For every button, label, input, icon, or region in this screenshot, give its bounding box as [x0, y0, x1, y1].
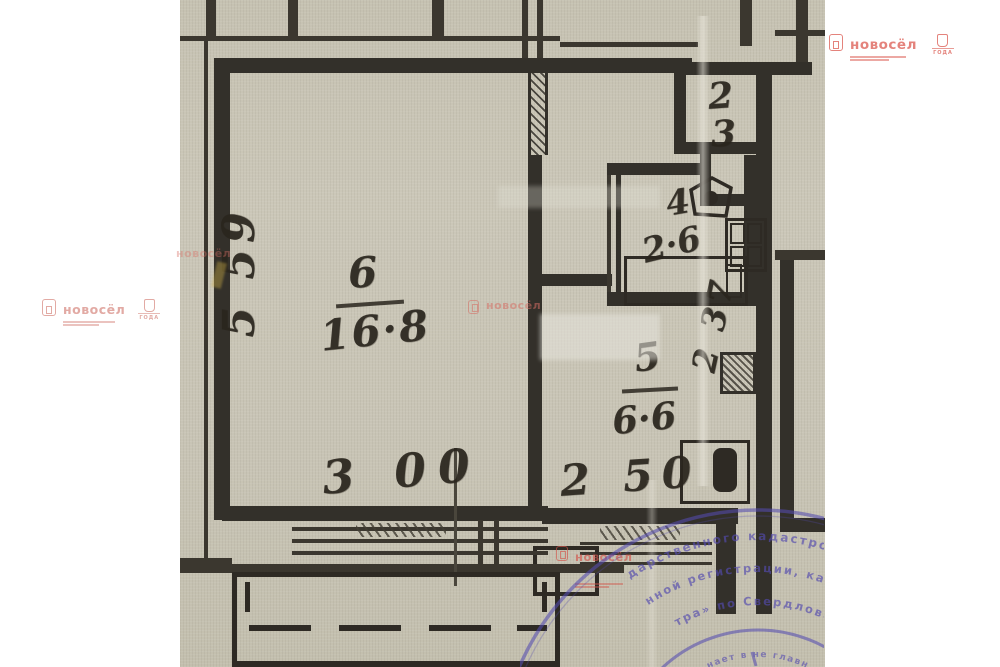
wall	[560, 42, 698, 47]
sink-icon	[688, 176, 734, 220]
wall-bath-left-outer	[607, 163, 611, 303]
window-hatch	[356, 523, 446, 537]
house-icon	[829, 34, 843, 51]
watermark-novosel-top-right: новосёл ГОДА	[829, 34, 954, 63]
watermark-tagline	[850, 56, 906, 63]
scan-light-band	[498, 186, 660, 208]
window-line	[292, 551, 548, 555]
dimension-bottom-main: 3 00	[320, 441, 483, 501]
window-divider	[478, 520, 483, 564]
award-rule	[138, 313, 160, 314]
room-number-main: 6	[347, 251, 378, 294]
window-line	[292, 539, 548, 543]
balcony	[232, 572, 560, 667]
scanned-floorplan-page: 6 16·8 5 6·6 2 3 4 2·6 5 59 3 00 2 50 2 …	[0, 0, 1000, 667]
wall-divider	[528, 155, 542, 508]
wall-left-outer	[204, 40, 208, 572]
room-area-kitchen: 6·6	[610, 397, 678, 441]
balcony-dash	[339, 625, 401, 631]
house-icon	[42, 299, 56, 316]
wall	[740, 0, 752, 46]
stove-icon	[725, 218, 767, 272]
watermark-tagline	[63, 321, 115, 328]
room-number-wc: 3	[710, 116, 736, 153]
watermark-novosel-left: новосёл ГОДА	[42, 299, 160, 328]
wall-top	[222, 58, 692, 73]
room-number-closet: 2	[707, 77, 735, 115]
watermark-award-label: ГОДА	[139, 315, 159, 321]
watermark-award: ГОДА	[138, 299, 160, 321]
wall	[522, 0, 528, 64]
wall-top-right	[676, 62, 812, 75]
window-divider	[494, 520, 499, 564]
wall-main-bottom	[222, 506, 548, 521]
balcony-tick	[245, 582, 250, 612]
medal-icon	[144, 299, 155, 312]
wall-divider-upper	[528, 73, 548, 155]
medal-icon	[937, 34, 948, 47]
balcony-dash	[429, 625, 491, 631]
wall-hall-kitchen	[542, 274, 612, 286]
stamp-ring3-text: тра» по Свердловск	[672, 594, 824, 629]
wall	[775, 250, 825, 260]
wall	[180, 36, 560, 41]
wall-bath-top	[607, 163, 705, 175]
room-area-main: 16·8	[318, 304, 432, 357]
wall	[432, 0, 444, 40]
wall	[206, 0, 216, 40]
wall-closet-left	[674, 70, 686, 152]
wall	[537, 0, 543, 64]
watermark-brand-text: новосёл	[850, 37, 917, 53]
balcony-dash	[249, 625, 311, 631]
wall-bath-left	[616, 163, 621, 303]
watermark-brand-text: новосёл	[63, 302, 125, 317]
registry-stamp: дарственного кадастрового уч нной регист…	[520, 480, 824, 667]
svg-text:нает в не главн: нает в не главн	[705, 650, 810, 667]
wall	[796, 0, 808, 66]
wall	[288, 0, 298, 40]
watermark-award-label: ГОДА	[933, 50, 953, 56]
room-number-kitchen: 5	[631, 336, 662, 377]
dimension-left: 5 59	[218, 192, 262, 352]
svg-text:тра» по Свердловск: тра» по Свердловск	[672, 594, 824, 629]
stamp-ring4-text: нает в не главн	[705, 650, 810, 667]
award-rule	[932, 48, 954, 49]
watermark-award: ГОДА	[932, 34, 954, 56]
